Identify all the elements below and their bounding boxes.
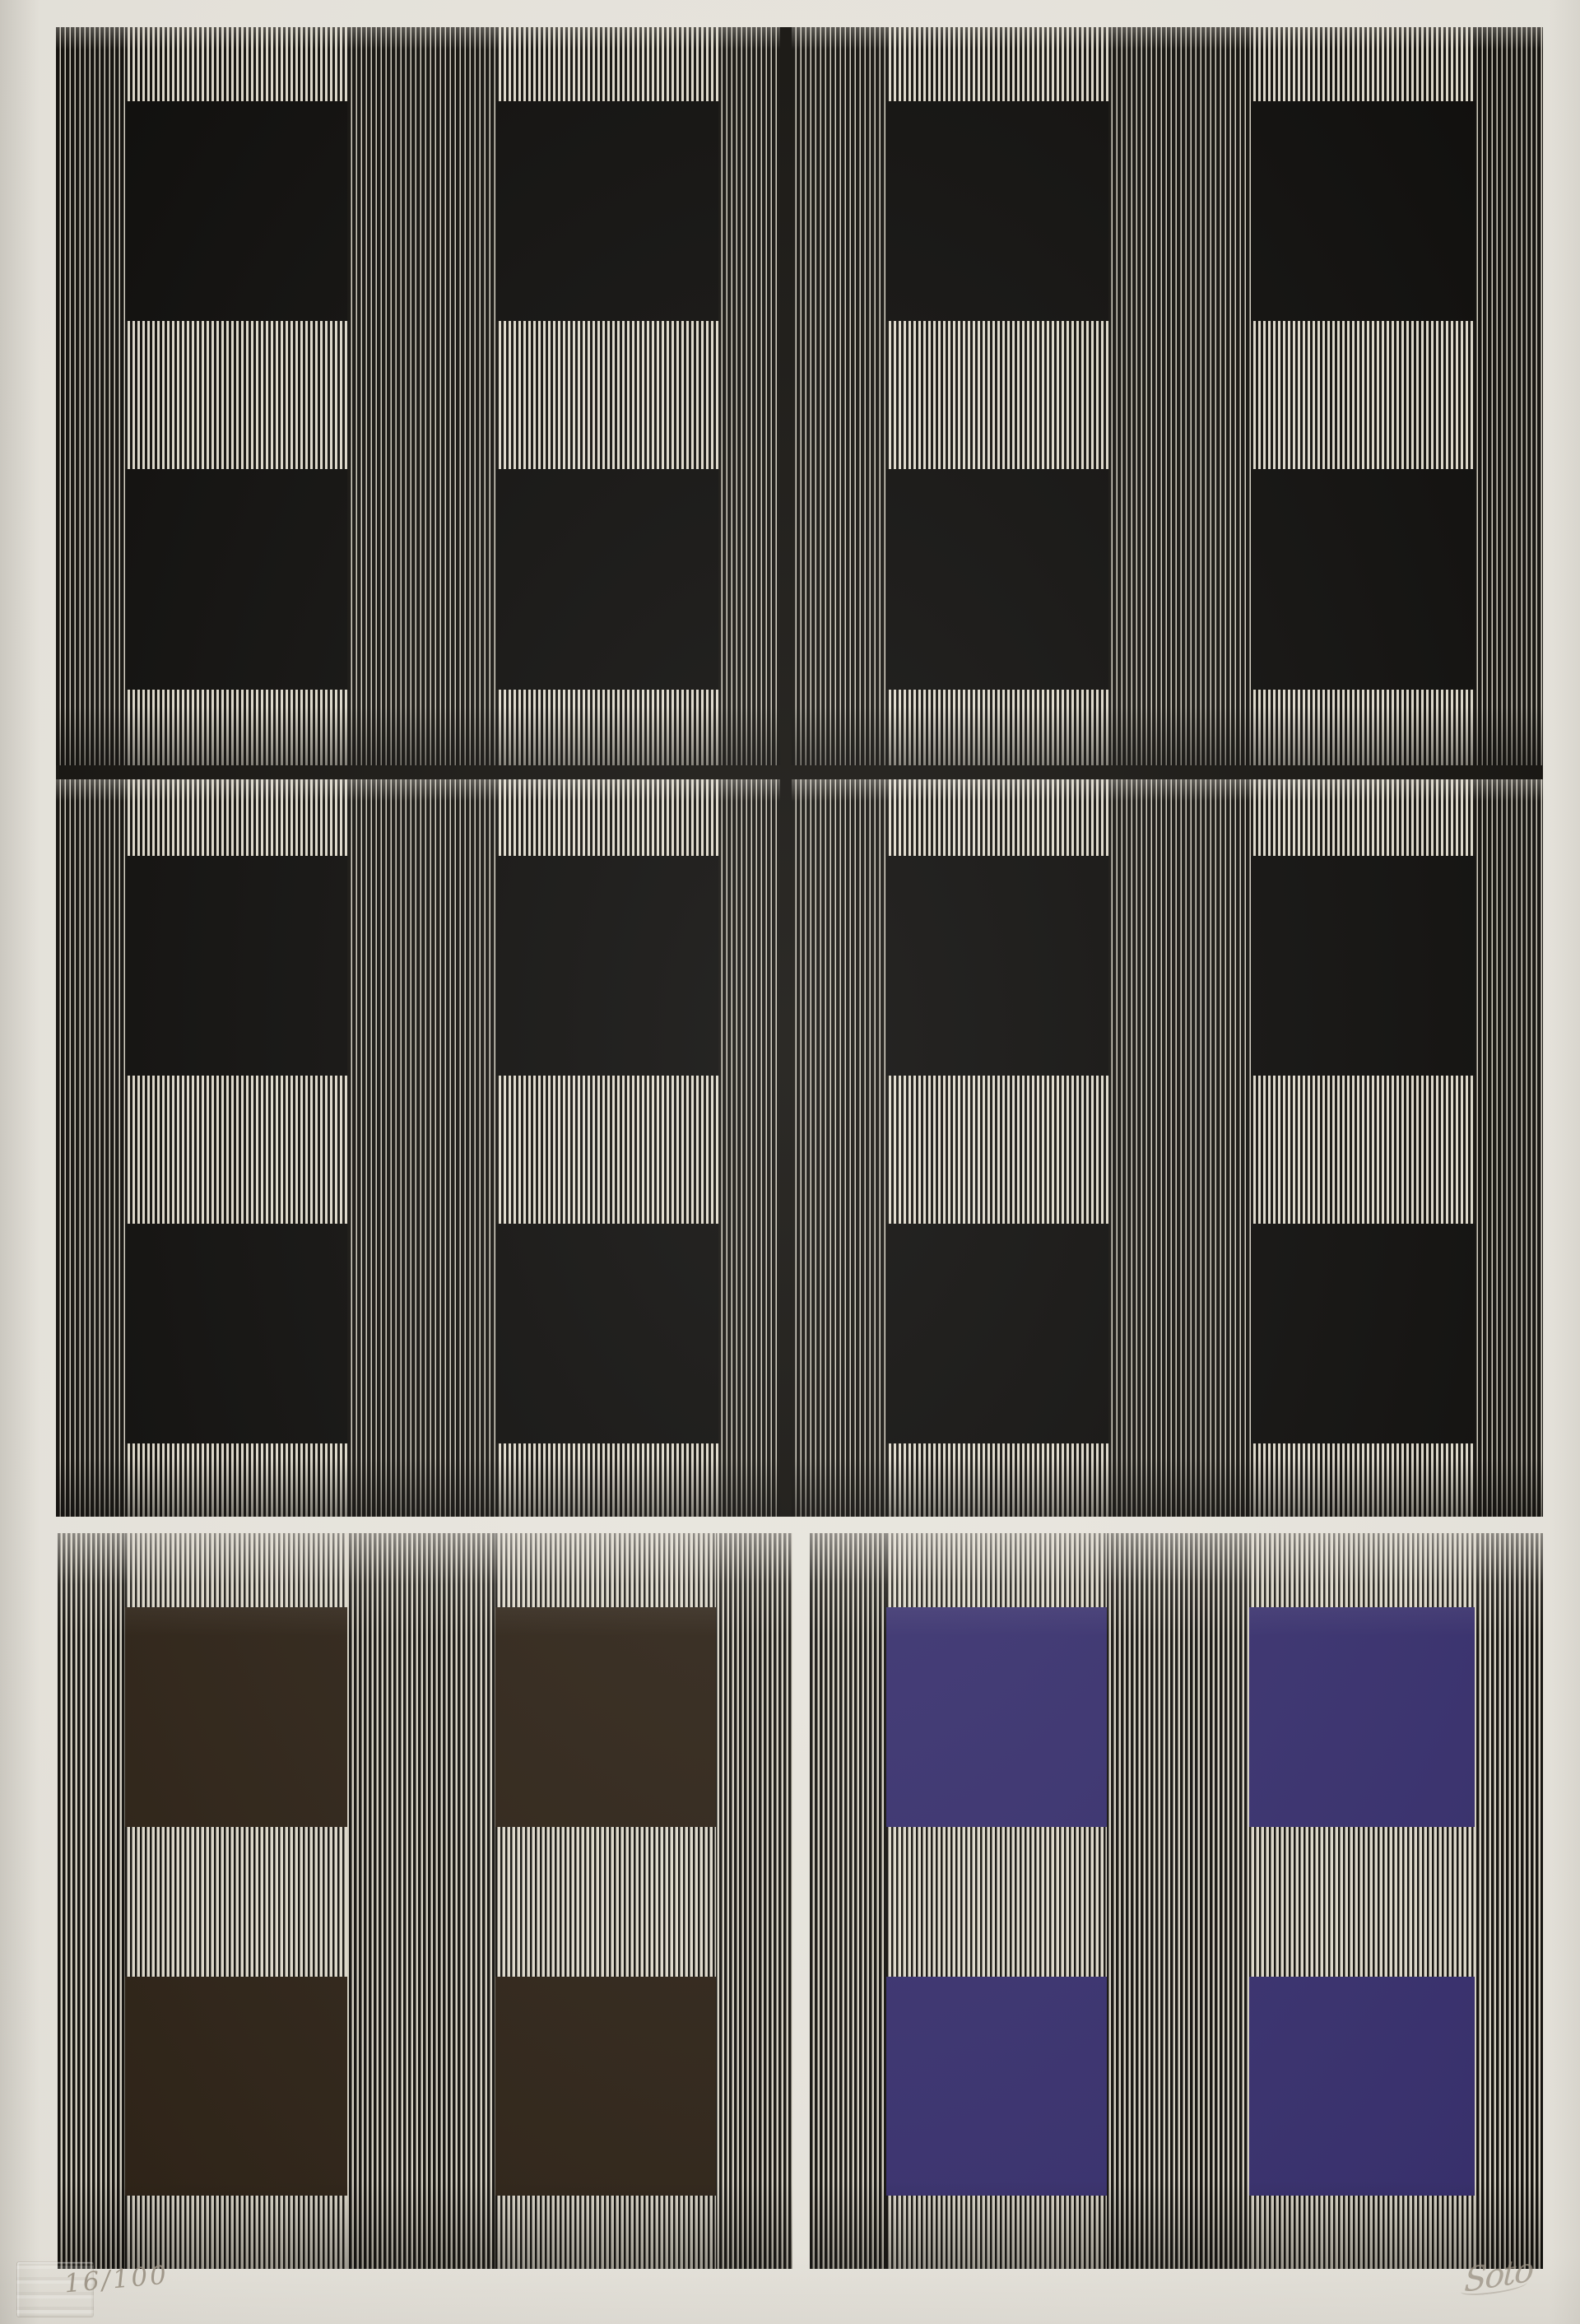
black-square: [496, 101, 718, 321]
violet-square: [886, 1977, 1107, 2196]
striped-panel-middle-right: [792, 779, 1543, 1517]
black-square: [886, 1224, 1108, 1443]
black-square: [1251, 856, 1475, 1076]
violet-square: [1249, 1607, 1475, 1827]
black-square: [886, 469, 1108, 690]
black-square: [1251, 101, 1475, 321]
brown-square: [125, 1607, 347, 1827]
artwork-sheet: 16/100 Soto: [0, 0, 1580, 2324]
panel-seam-vertical: [780, 27, 792, 1517]
black-square: [125, 1224, 347, 1443]
black-square: [496, 1224, 718, 1443]
black-square: [496, 856, 718, 1076]
striped-panel-upper-right: [792, 27, 1543, 765]
black-square: [496, 469, 718, 690]
panel-seam-horizontal: [56, 765, 1543, 779]
black-square: [125, 469, 347, 690]
violet-square: [1249, 1977, 1475, 2196]
brown-square: [125, 1977, 347, 2196]
striped-panel-upper-left: [56, 27, 780, 765]
violet-square: [886, 1607, 1107, 1827]
black-square: [125, 856, 347, 1076]
black-square: [1251, 469, 1475, 690]
black-square: [1251, 1224, 1475, 1443]
black-square: [886, 101, 1108, 321]
black-square: [886, 856, 1108, 1076]
striped-panel-lower-right: [810, 1533, 1543, 2269]
brown-square: [495, 1977, 716, 2196]
black-square: [125, 101, 347, 321]
brown-square: [495, 1607, 716, 1827]
striped-panel-lower-left: [58, 1533, 792, 2269]
striped-panel-middle-left: [56, 779, 780, 1517]
